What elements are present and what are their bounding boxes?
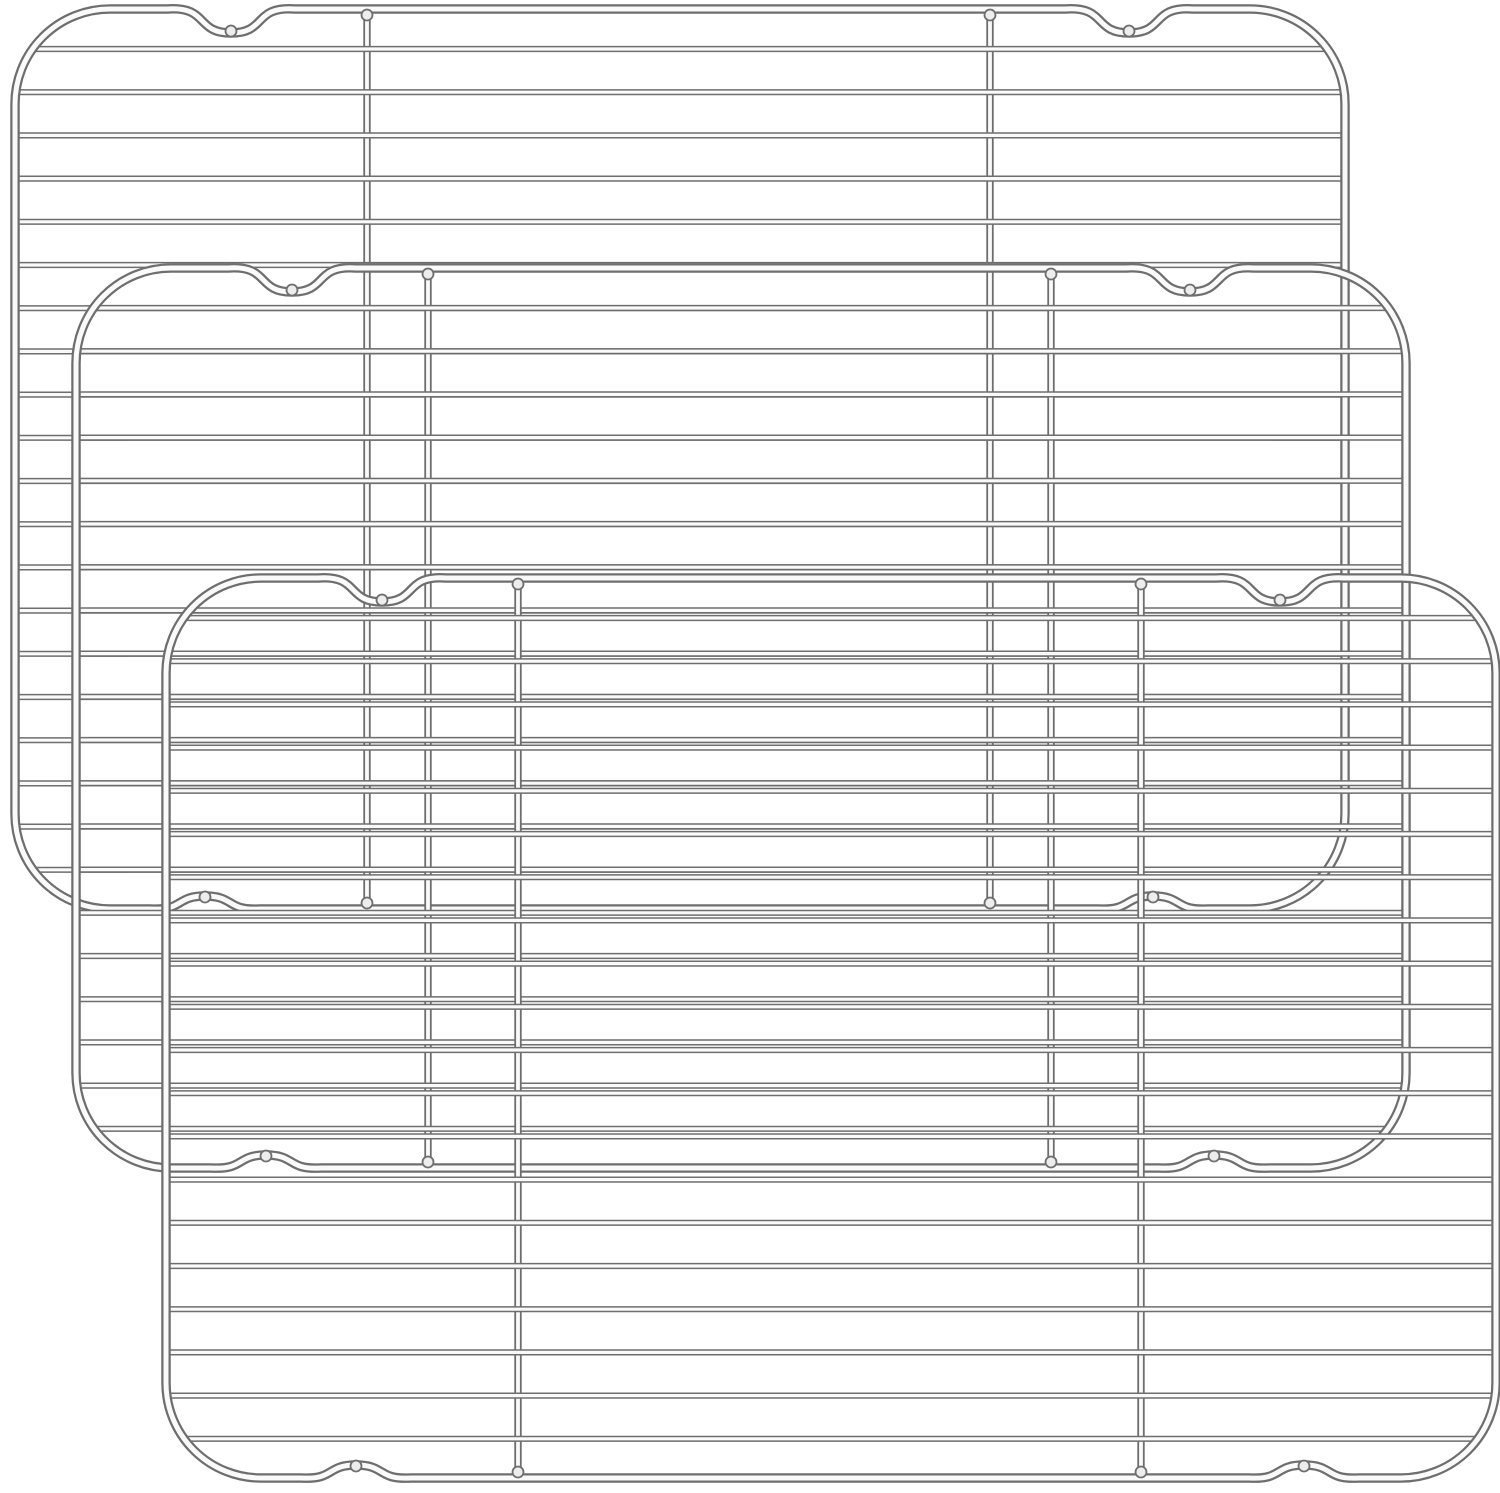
weld-dot: [985, 10, 996, 21]
weld-dot: [362, 898, 373, 909]
weld-dot: [423, 1157, 434, 1168]
weld-dot: [513, 579, 524, 590]
product-image: [0, 0, 1500, 1493]
weld-dot: [1046, 269, 1057, 280]
weld-dot: [1136, 1467, 1147, 1478]
cooling-rack-set-illustration: [0, 0, 1500, 1493]
weld-dot: [513, 1467, 524, 1478]
weld-dot: [1209, 1151, 1220, 1162]
weld-dot: [1136, 579, 1147, 590]
weld-dot: [1148, 892, 1159, 903]
weld-dot: [351, 1461, 362, 1472]
weld-dot: [1046, 1157, 1057, 1168]
weld-dot: [287, 285, 298, 296]
weld-dot: [226, 26, 237, 37]
weld-dot: [423, 269, 434, 280]
weld-dot: [362, 10, 373, 21]
weld-dot: [1185, 285, 1196, 296]
weld-dot: [377, 595, 388, 606]
weld-dot: [1124, 26, 1135, 37]
weld-dot: [1299, 1461, 1310, 1472]
weld-dot: [261, 1151, 272, 1162]
weld-dot: [200, 892, 211, 903]
weld-dot: [985, 898, 996, 909]
weld-dot: [1275, 595, 1286, 606]
